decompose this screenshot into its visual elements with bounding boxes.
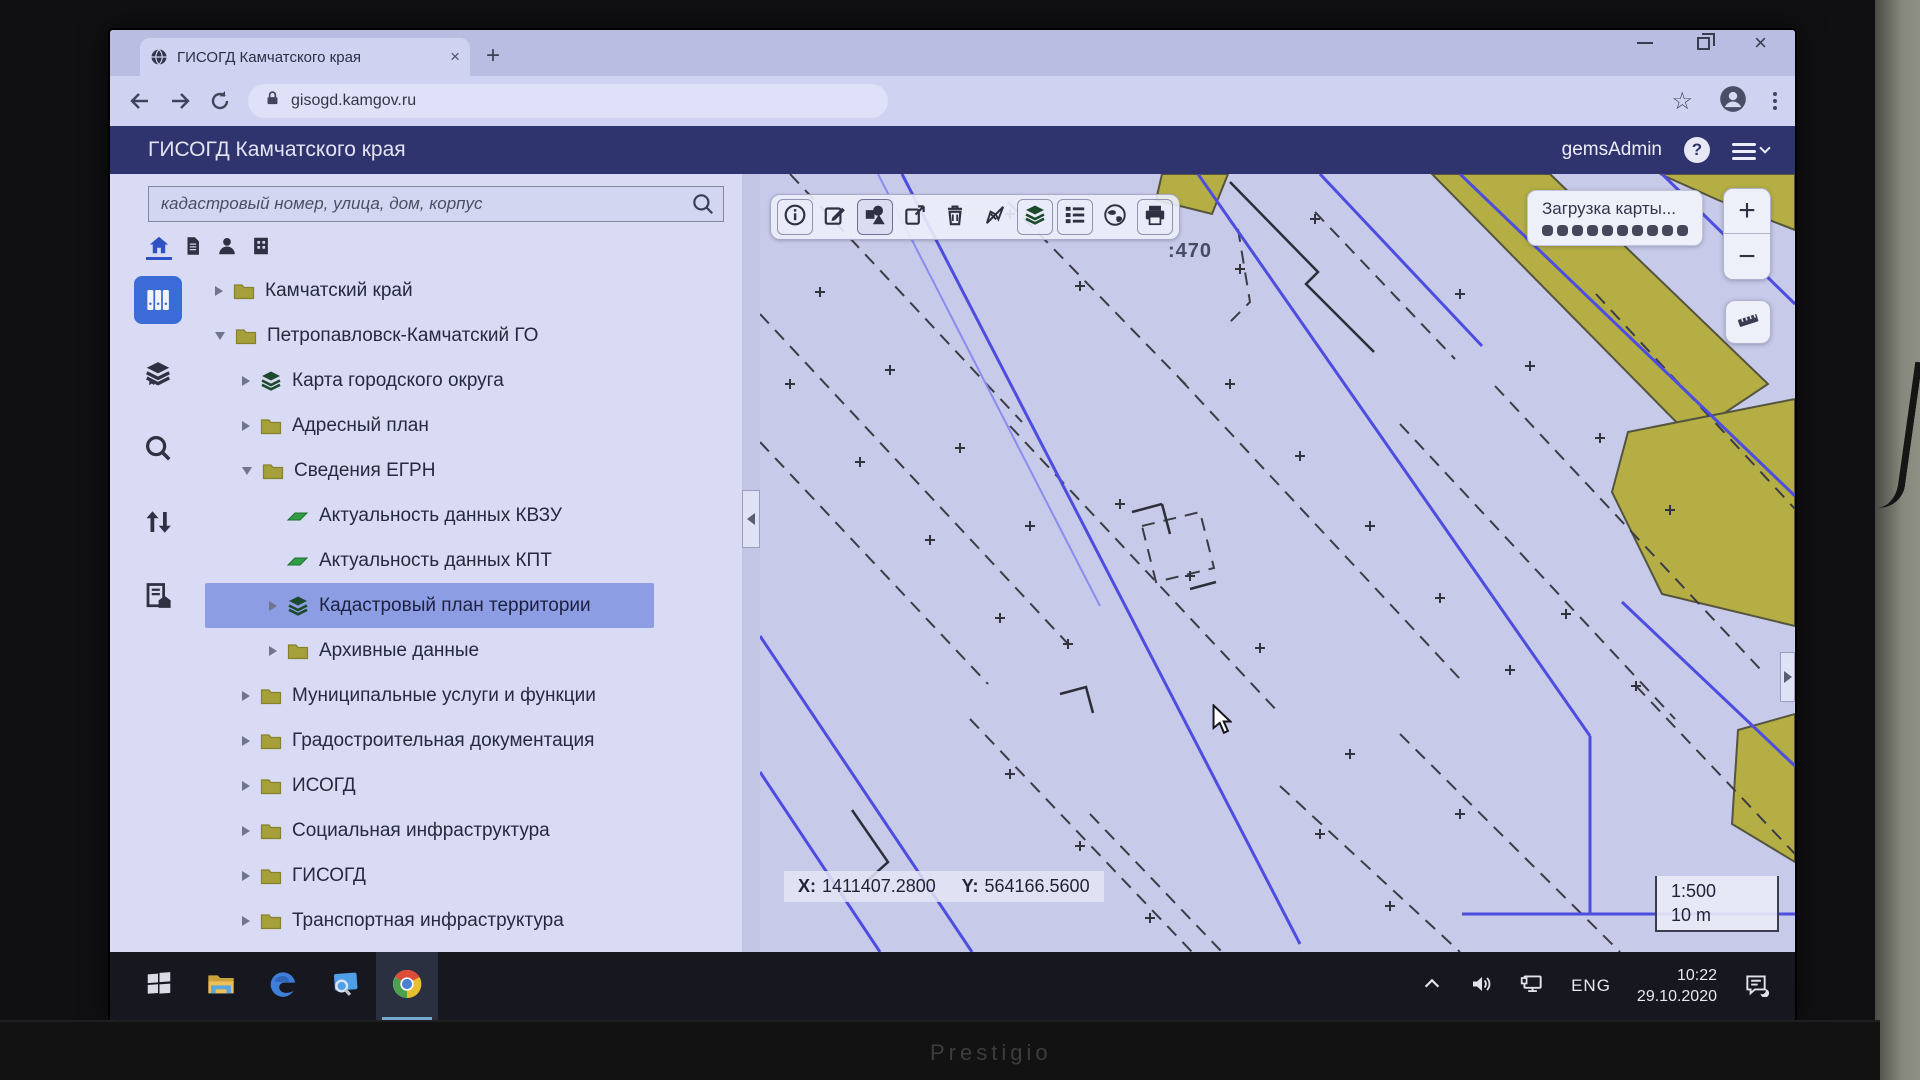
tree-item-label: Адресный план (292, 415, 429, 437)
tab-close-icon[interactable]: × (450, 47, 460, 67)
folder-icon (259, 864, 283, 888)
map-area: Загрузка карты... + − :470 X:1411407.280… (760, 174, 1795, 952)
layers-icon (286, 594, 310, 618)
tree-item[interactable]: Архивные данные (205, 628, 654, 673)
tree-item[interactable]: Актуальность данных КПТ (205, 538, 654, 583)
panel-splitter[interactable] (742, 174, 760, 952)
folder-icon (259, 414, 283, 438)
books-rail-button[interactable] (134, 350, 182, 398)
main-content: Камчатский крайПетропавловск-Камчатский … (110, 174, 1795, 952)
tree-item-label: Камчатский край (265, 280, 413, 302)
folder-icon (259, 909, 283, 933)
collapse-left-icon (747, 513, 755, 525)
legend-list-icon (1062, 202, 1088, 233)
action-center-icon[interactable] (1743, 984, 1769, 1001)
language-indicator[interactable]: ENG (1571, 976, 1611, 996)
browser-tab[interactable]: ГИСОГД Камчатского края × (140, 38, 470, 76)
clock-date: 29.10.2020 (1637, 986, 1717, 1007)
layers-button[interactable] (1017, 199, 1053, 235)
search-rail-button[interactable] (134, 424, 182, 472)
expander-icon[interactable] (242, 467, 252, 475)
tree-item-label: Градостроительная документация (292, 730, 594, 752)
tree-item[interactable]: Адресный план (205, 403, 654, 448)
info-button[interactable] (777, 199, 813, 235)
tree-item[interactable]: Актуальность данных КВЗУ (205, 493, 654, 538)
tree-item-label: Социальная инфраструктура (292, 820, 550, 842)
zoom-in-button[interactable]: + (1724, 189, 1770, 234)
expander-icon[interactable] (242, 826, 250, 836)
lock-icon (264, 90, 281, 112)
expander-icon[interactable] (215, 286, 223, 296)
tree-item[interactable]: Муниципальные услуги и функции (205, 673, 654, 718)
folder-icon (234, 324, 258, 348)
tree-item-label: Петропавловск-Камчатский ГО (267, 325, 538, 347)
tree-item-label: Муниципальные услуги и функции (292, 685, 596, 707)
trash-icon (942, 202, 968, 233)
app-menu-button[interactable] (1732, 140, 1769, 160)
hamburger-icon (1732, 143, 1756, 160)
sidebar-panel: Камчатский крайПетропавловск-Камчатский … (110, 174, 742, 952)
folder-icon (259, 774, 283, 798)
globe-favicon-icon (150, 48, 168, 66)
measure-arrow-icon (982, 202, 1008, 233)
expander-icon[interactable] (242, 421, 250, 431)
layers-icon (259, 369, 283, 393)
search-input[interactable] (148, 186, 724, 222)
tree-item-label: Актуальность данных КПТ (319, 550, 552, 572)
expander-icon[interactable] (242, 916, 250, 926)
expand-right-icon (1784, 671, 1792, 683)
tab-title: ГИСОГД Камчатского края (177, 49, 441, 66)
address-bar[interactable]: gisogd.kamgov.ru (248, 84, 888, 118)
tree-item-label: Сведения ЕГРН (294, 460, 435, 482)
person-icon[interactable] (214, 232, 240, 260)
tree-item[interactable]: ГИСОГД (205, 853, 654, 898)
trash-button[interactable] (937, 199, 973, 235)
info-icon (782, 202, 808, 233)
help-icon[interactable]: ? (1684, 137, 1710, 163)
map-toolbar (770, 194, 1180, 240)
monitor-screen: ГИСОГД Камчатского края × + × gisogd.kam (110, 30, 1795, 1020)
browser-menu-icon[interactable] (1773, 92, 1777, 110)
chrome-icon (391, 968, 423, 1005)
mouse-cursor (1212, 704, 1232, 740)
tree-item[interactable]: Транспортная инфраструктура (205, 898, 654, 943)
search-icon[interactable] (690, 191, 716, 222)
file-explorer-icon (205, 968, 237, 1005)
folder-icon (259, 819, 283, 843)
chevron-up-icon[interactable] (1421, 973, 1443, 1000)
tree-item-label: Карта городского округа (292, 370, 504, 392)
window-minimize-icon[interactable] (1637, 42, 1653, 44)
expander-icon[interactable] (242, 691, 250, 701)
coordinates-readout: X:1411407.2800 Y:564166.5600 (784, 871, 1104, 902)
browser-tabstrip: ГИСОГД Камчатского края × + × (110, 30, 1795, 76)
scale-length: 10 m (1671, 903, 1777, 927)
map-scale-bar: 1:500 10 m (1655, 876, 1779, 932)
map-loading-box: Загрузка карты... (1527, 190, 1703, 246)
measure-ruler-button[interactable] (1725, 300, 1771, 344)
expander-icon[interactable] (242, 781, 250, 791)
tree-item-label: Актуальность данных КВЗУ (319, 505, 562, 527)
monitor-bezel: Prestigio (0, 1020, 1880, 1080)
cable (1876, 359, 1920, 511)
tree-item-label: Архивные данные (319, 640, 479, 662)
chevron-down-icon (1759, 142, 1770, 153)
screen-search-taskbar-button[interactable] (314, 952, 376, 1020)
forward-icon[interactable] (168, 89, 192, 113)
folder-icon (259, 684, 283, 708)
zoom-controls: + − (1723, 188, 1771, 280)
app-header: ГИСОГД Камчатского края gemsAdmin ? (110, 126, 1795, 174)
home-icon[interactable] (146, 232, 172, 260)
draw-shapes-button[interactable] (857, 199, 893, 235)
tree-item-label: ИСОГД (292, 775, 356, 797)
chrome-taskbar-button[interactable] (376, 952, 438, 1020)
expander-icon[interactable] (269, 646, 277, 656)
clock-time: 10:22 (1637, 965, 1717, 986)
tree-item[interactable]: Социальная инфраструктура (205, 808, 654, 853)
tree-item[interactable]: Петропавловск-Камчатский ГО (205, 313, 654, 358)
speaker-icon[interactable] (1469, 972, 1493, 1001)
building-icon[interactable] (248, 232, 274, 260)
tree-item[interactable]: Карта городского округа (205, 358, 654, 403)
print-icon (1142, 202, 1168, 233)
window-close-icon[interactable]: × (1754, 36, 1767, 50)
measure-arrow-button[interactable] (977, 199, 1013, 235)
layers-icon (1023, 203, 1047, 232)
window-restore-icon[interactable] (1697, 37, 1710, 50)
sidebar-rail (110, 266, 205, 952)
profile-avatar[interactable] (1719, 85, 1747, 118)
coord-x-label: X: (798, 876, 816, 896)
browser-toolbar: gisogd.kamgov.ru ☆ (110, 76, 1795, 126)
edge-taskbar-button[interactable] (252, 952, 314, 1020)
start-windows-taskbar-button[interactable] (128, 952, 190, 1020)
globe-icon (1102, 202, 1128, 233)
tree-item[interactable]: ИСОГД (205, 763, 654, 808)
reload-icon[interactable] (208, 89, 232, 113)
scale-ratio: 1:500 (1671, 879, 1777, 903)
flag-icon (286, 504, 310, 528)
expander-icon[interactable] (242, 871, 250, 881)
legend-list-button[interactable] (1057, 199, 1093, 235)
back-icon[interactable] (128, 89, 152, 113)
expander-icon[interactable] (242, 736, 250, 746)
ruler-icon (1735, 307, 1761, 338)
url-text: gisogd.kamgov.ru (291, 92, 416, 110)
print-button[interactable] (1137, 199, 1173, 235)
start-windows-icon (144, 969, 174, 1004)
screen-search-icon (329, 968, 361, 1005)
layer-tree: Камчатский крайПетропавловск-Камчатский … (205, 266, 742, 952)
photo-scene: ГИСОГД Камчатского края × + × gisogd.kam (0, 0, 1920, 1080)
tree-item[interactable]: Сведения ЕГРН (205, 448, 654, 493)
coord-x-value: 1411407.2800 (822, 876, 936, 896)
transfer-arrows-rail-button[interactable] (134, 498, 182, 546)
open-external-icon (902, 202, 928, 233)
wall (1875, 0, 1920, 1080)
open-external-button[interactable] (897, 199, 933, 235)
tree-item[interactable]: Камчатский край (205, 268, 654, 313)
loading-progress-dots (1542, 225, 1688, 236)
tree-item-label: Кадастровый план территории (319, 595, 591, 617)
binders-rail-button[interactable] (134, 276, 182, 324)
file-explorer-taskbar-button[interactable] (190, 952, 252, 1020)
zoom-out-button[interactable]: − (1724, 234, 1770, 279)
draw-shapes-icon (862, 202, 888, 233)
edge-icon (267, 968, 299, 1005)
page-title: ГИСОГД Камчатского края (148, 138, 406, 162)
expand-right-handle[interactable] (1780, 652, 1795, 702)
loading-text: Загрузка карты... (1542, 199, 1688, 219)
expander-icon[interactable] (269, 601, 277, 611)
expander-icon[interactable] (242, 376, 250, 386)
flag-icon (286, 549, 310, 573)
document-home-rail-button[interactable] (134, 572, 182, 620)
map-canvas[interactable] (760, 174, 1795, 952)
folder-icon (259, 729, 283, 753)
folder-icon (232, 279, 256, 303)
globe-button[interactable] (1097, 199, 1133, 235)
edit-icon (822, 202, 848, 233)
taskbar-clock[interactable]: 10:22 29.10.2020 (1637, 965, 1717, 1007)
parcel-number-label: :470 (1168, 240, 1212, 263)
network-icon[interactable] (1519, 971, 1545, 1002)
collapse-panel-handle[interactable] (742, 490, 760, 548)
windows-taskbar: ENG 10:22 29.10.2020 (110, 952, 1795, 1020)
user-name: gemsAdmin (1562, 139, 1662, 161)
tree-item-label: ГИСОГД (292, 865, 366, 887)
folder-icon (261, 459, 285, 483)
tree-item-label: Транспортная инфраструктура (292, 910, 564, 932)
coord-y-label: Y: (962, 876, 979, 896)
tree-item[interactable]: Градостроительная документация (205, 718, 654, 763)
bookmark-star-icon[interactable]: ☆ (1671, 87, 1693, 116)
document-icon[interactable] (180, 232, 206, 260)
expander-icon[interactable] (215, 332, 225, 340)
monitor-brand: Prestigio (930, 1040, 1052, 1066)
folder-icon (286, 639, 310, 663)
coord-y-value: 564166.5600 (984, 876, 1089, 896)
tree-item[interactable]: Кадастровый план территории (205, 583, 654, 628)
new-tab-button[interactable]: + (486, 42, 500, 70)
edit-button[interactable] (817, 199, 853, 235)
